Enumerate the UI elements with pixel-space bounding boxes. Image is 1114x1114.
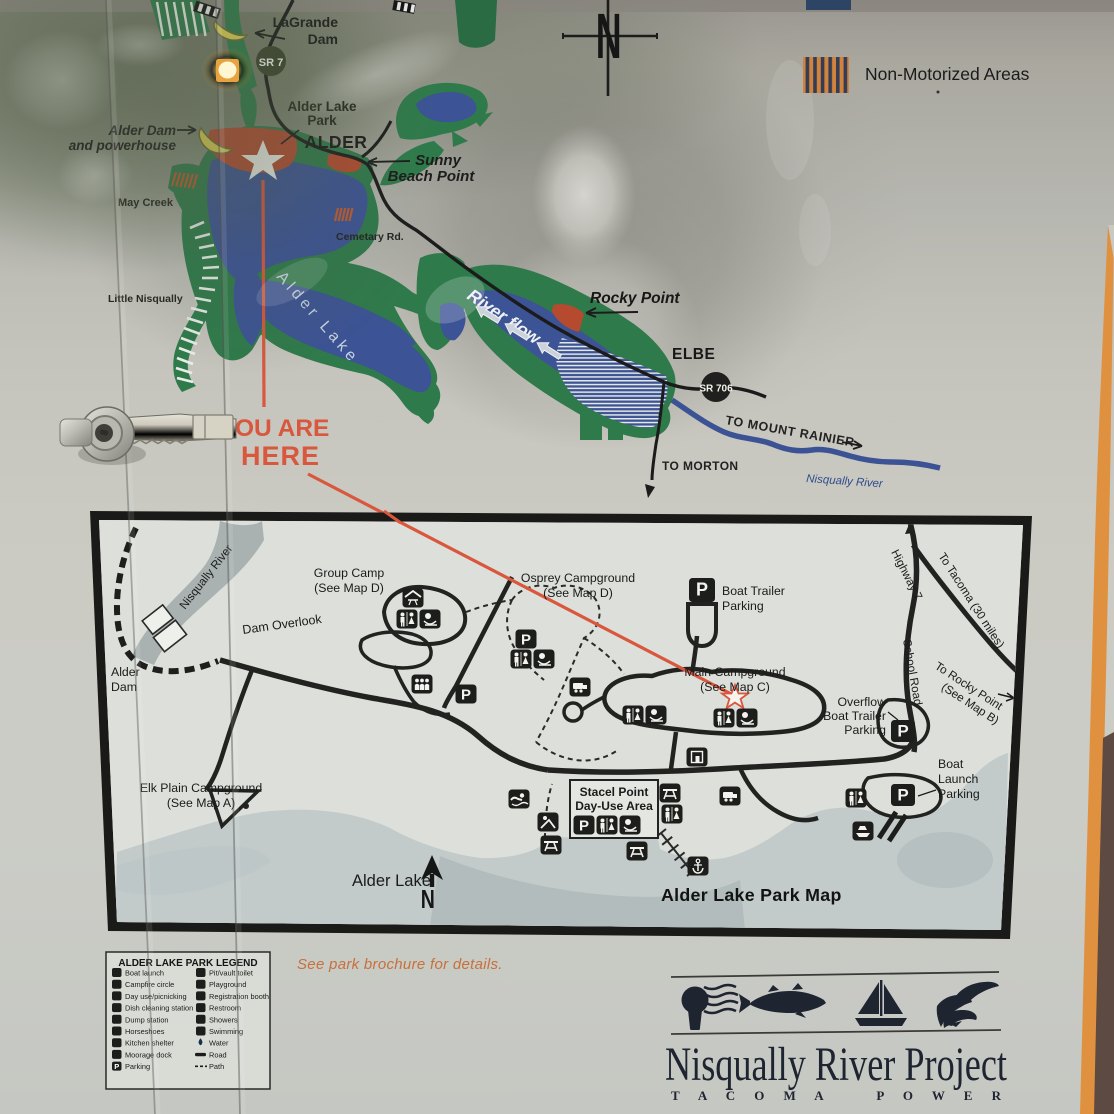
svg-text:Moorage dock: Moorage dock <box>125 1050 172 1059</box>
svg-text:Road: Road <box>209 1050 227 1059</box>
svg-text:Stacel Point: Stacel Point <box>580 785 649 799</box>
svg-text:Pit/vault toilet: Pit/vault toilet <box>209 969 253 978</box>
svg-text:Restroom: Restroom <box>209 1004 241 1013</box>
svg-text:Parking: Parking <box>125 1062 150 1071</box>
svg-text:Sunny: Sunny <box>415 152 461 169</box>
svg-text:Osprey Campground: Osprey Campground <box>521 571 635 585</box>
svg-text:Rocky Point: Rocky Point <box>590 290 680 307</box>
svg-text:Group Camp: Group Camp <box>314 566 385 580</box>
svg-text:Nisqually River Project: Nisqually River Project <box>665 1038 1007 1091</box>
svg-text:Launch: Launch <box>938 772 979 786</box>
svg-text:SR 706: SR 706 <box>699 384 733 395</box>
svg-text:Showers: Showers <box>209 1015 238 1024</box>
svg-text:(See Map D): (See Map D) <box>543 586 613 600</box>
svg-text:Day use/picnicking: Day use/picnicking <box>125 992 187 1001</box>
svg-text:Parking: Parking <box>844 723 886 737</box>
svg-text:P: P <box>521 632 531 649</box>
svg-text:P: P <box>897 722 908 741</box>
svg-text:OU ARE: OU ARE <box>235 415 329 442</box>
svg-text:(See Map C): (See Map C) <box>700 680 770 694</box>
svg-text:Water: Water <box>209 1039 229 1048</box>
svg-text:Overflow: Overflow <box>837 695 886 709</box>
svg-text:Elk Plain Campground: Elk Plain Campground <box>140 781 263 795</box>
svg-text:Alder Lake Park Map: Alder Lake Park Map <box>661 885 842 905</box>
svg-text:P: P <box>461 687 471 704</box>
svg-text:Dam: Dam <box>111 680 137 694</box>
svg-text:P: P <box>897 786 908 805</box>
svg-text:Dump station: Dump station <box>125 1015 169 1024</box>
svg-text:P: P <box>114 1062 119 1071</box>
svg-text:(See Map D): (See Map D) <box>314 581 384 595</box>
svg-text:N: N <box>421 884 435 913</box>
svg-text:Boat: Boat <box>938 757 964 771</box>
svg-text:Boat launch: Boat launch <box>125 969 164 978</box>
svg-text:Day-Use Area: Day-Use Area <box>575 799 653 813</box>
svg-text:See park brochure for details.: See park brochure for details. <box>297 956 503 973</box>
svg-text:TO MORTON: TO MORTON <box>662 459 739 473</box>
svg-text:P: P <box>579 818 589 835</box>
svg-text:Parking: Parking <box>938 787 980 801</box>
svg-text:Parking: Parking <box>722 599 764 613</box>
svg-text:(See Map A): (See Map A) <box>167 796 235 810</box>
svg-text:P: P <box>696 580 708 600</box>
svg-text:Main Campground: Main Campground <box>684 665 785 679</box>
svg-text:Path: Path <box>209 1062 224 1071</box>
svg-text:HERE: HERE <box>241 441 320 471</box>
svg-text:Boat Trailer: Boat Trailer <box>823 709 886 723</box>
svg-text:N: N <box>596 0 622 72</box>
svg-text:Non-Motorized Areas: Non-Motorized Areas <box>865 64 1030 84</box>
svg-text:Alder Lake: Alder Lake <box>352 872 431 890</box>
svg-text:Kitchen shelter: Kitchen shelter <box>125 1039 174 1048</box>
svg-text:Dish cleaning station: Dish cleaning station <box>125 1004 193 1013</box>
svg-text:Horseshoes: Horseshoes <box>125 1027 165 1036</box>
svg-text:ELBE: ELBE <box>672 346 715 363</box>
svg-text:Boat Trailer: Boat Trailer <box>722 584 785 598</box>
